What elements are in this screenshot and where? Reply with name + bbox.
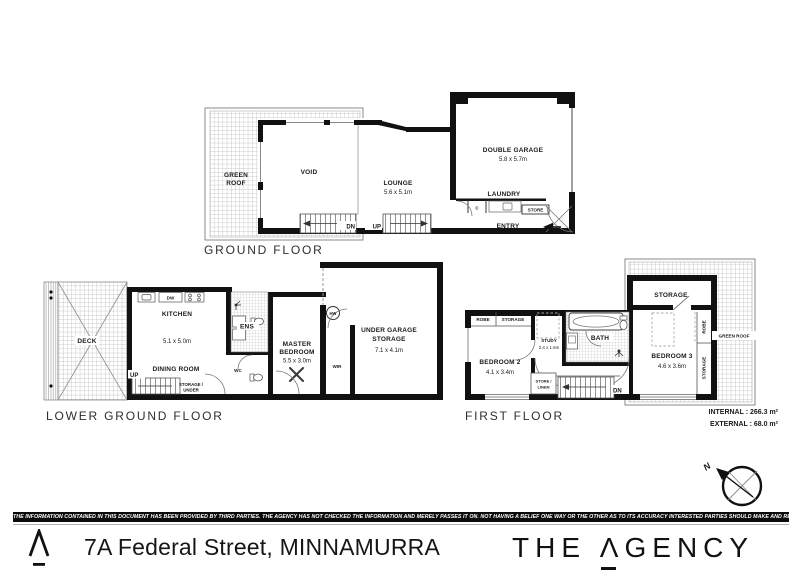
internal-area: INTERNAL : 266.3 m² <box>709 409 779 416</box>
first-green-roof-label: GREEN ROOF <box>712 331 756 340</box>
sus-label-2: UNDER <box>183 388 199 393</box>
storage-top-label: STORAGE <box>654 292 688 299</box>
svg-text:GREEN ROOF: GREEN ROOF <box>719 334 750 339</box>
ugs-dim: 7.1 x 4.1m <box>375 348 403 354</box>
lounge-dim: 5.6 x 5.1m <box>384 190 412 196</box>
agency-logo-icon <box>28 529 52 569</box>
ugs-label-1: UNDER GARAGE <box>361 327 417 334</box>
cooktop-box <box>185 293 204 303</box>
first-floor-title: FIRST FLOOR <box>465 409 564 423</box>
brand-a-glyph: Λ <box>600 532 625 564</box>
garage-dim: 5.8 x 5.7m <box>499 157 527 163</box>
first-dn-label: DN <box>613 389 622 395</box>
master-label-2: BEDROOM <box>279 349 314 356</box>
footer-rule <box>13 524 789 525</box>
wc-label: WC <box>234 368 242 373</box>
compass: N <box>701 460 761 505</box>
sus-label-3: STAIRS <box>183 393 199 398</box>
ground-floor-title: GROUND FLOOR <box>204 243 324 257</box>
property-address: 7A Federal Street, MINNAMURRA <box>84 534 440 561</box>
toilet-icon <box>620 316 627 330</box>
storage-small-label: STORAGE <box>502 317 525 322</box>
north-label: N <box>701 460 712 472</box>
floorplan-document: GREEN ROOF VOID LOUNGE 5.6 x 5.1m DOUBLE… <box>0 0 800 578</box>
disclaimer-bar: THE INFORMATION CONTAINED IN THIS DOCUME… <box>13 512 789 522</box>
kitchen-label: KITCHEN <box>162 311 192 318</box>
ground-up-label: UP <box>373 225 381 231</box>
store-linen-closet <box>531 373 556 394</box>
ens-label: ENS <box>240 324 254 331</box>
bath-label: BATH <box>591 335 609 342</box>
ground-dn-label: DN <box>346 225 355 231</box>
dining-label: DINING ROOM <box>153 366 200 373</box>
brand-a-underscore <box>601 567 616 570</box>
vanity-icon <box>233 329 246 340</box>
store-linen-label-1: STORE / <box>536 379 553 384</box>
toilet-icon <box>250 374 263 381</box>
kitchen-sink-icon <box>142 295 151 301</box>
lower-floor-title: LOWER GROUND FLOOR <box>46 409 224 423</box>
study-label: STUDY <box>541 338 557 343</box>
lower-up-label: UP <box>130 373 138 379</box>
bed3-label: BEDROOM 3 <box>651 353 692 360</box>
storage-vertical-label: STORAGE <box>702 357 707 380</box>
robe-label: ROBE <box>476 317 489 322</box>
ugs-label-2: STORAGE <box>372 336 406 343</box>
store-label: STORE <box>528 208 544 213</box>
laundry-label: LAUNDRY <box>488 191 521 198</box>
bed2-dim: 4.1 x 3.4m <box>486 370 514 376</box>
sus-label-1: STORAGE / <box>179 382 204 387</box>
kitchen-dim: 5.1 x 5.0m <box>163 339 191 345</box>
wir-label: WIR <box>333 364 343 369</box>
brand-gency: GENCY <box>624 532 754 563</box>
bathtub-icon <box>569 313 623 330</box>
external-area: EXTERNAL : 68.0 m² <box>710 421 779 428</box>
hw-label: HW <box>330 311 337 316</box>
robe-vertical-label: ROBE <box>702 320 707 333</box>
store-linen-label-2: LINEN <box>538 385 550 390</box>
master-dim: 5.5 x 3.0m <box>283 359 311 365</box>
deck-planter <box>44 282 58 400</box>
deck-label: DECK <box>77 338 96 345</box>
bed2-label: BEDROOM 2 <box>479 359 520 366</box>
north-arrow-icon <box>716 468 729 480</box>
bed3-dim: 4.6 x 3.6m <box>658 364 686 370</box>
garage-interior <box>450 92 575 234</box>
lower-ground-floor-plan: DECK KITCHEN 5.1 x 5.0m DINING ROOM DW E… <box>44 262 443 423</box>
garage-label: DOUBLE GARAGE <box>483 147 544 154</box>
void-label: VOID <box>301 169 318 176</box>
brand-the: THE <box>512 532 586 563</box>
ground-floor-plan: GREEN ROOF VOID LOUNGE 5.6 x 5.1m DOUBLE… <box>204 92 576 257</box>
entry-label: ENTRY <box>497 223 520 230</box>
laundry-sink-icon <box>503 203 512 210</box>
lounge-label: LOUNGE <box>383 180 412 187</box>
master-label-1: MASTER <box>283 341 312 348</box>
floorplan-drawing: GREEN ROOF VOID LOUNGE 5.6 x 5.1m DOUBLE… <box>0 0 800 510</box>
study-dim: 2.4 x 1.6m <box>539 345 560 350</box>
brand-wordmark: THE ΛGENCY <box>512 532 754 564</box>
ground-green-roof-label-2: ROOF <box>226 180 246 187</box>
ensuite <box>231 292 268 352</box>
first-floor-plan: STORAGE ROBE STORAGE BEDROOM 2 4.1 x 3.4… <box>465 259 779 428</box>
dw-label: DW <box>167 296 175 301</box>
ground-green-roof-label-1: GREEN <box>224 172 248 179</box>
